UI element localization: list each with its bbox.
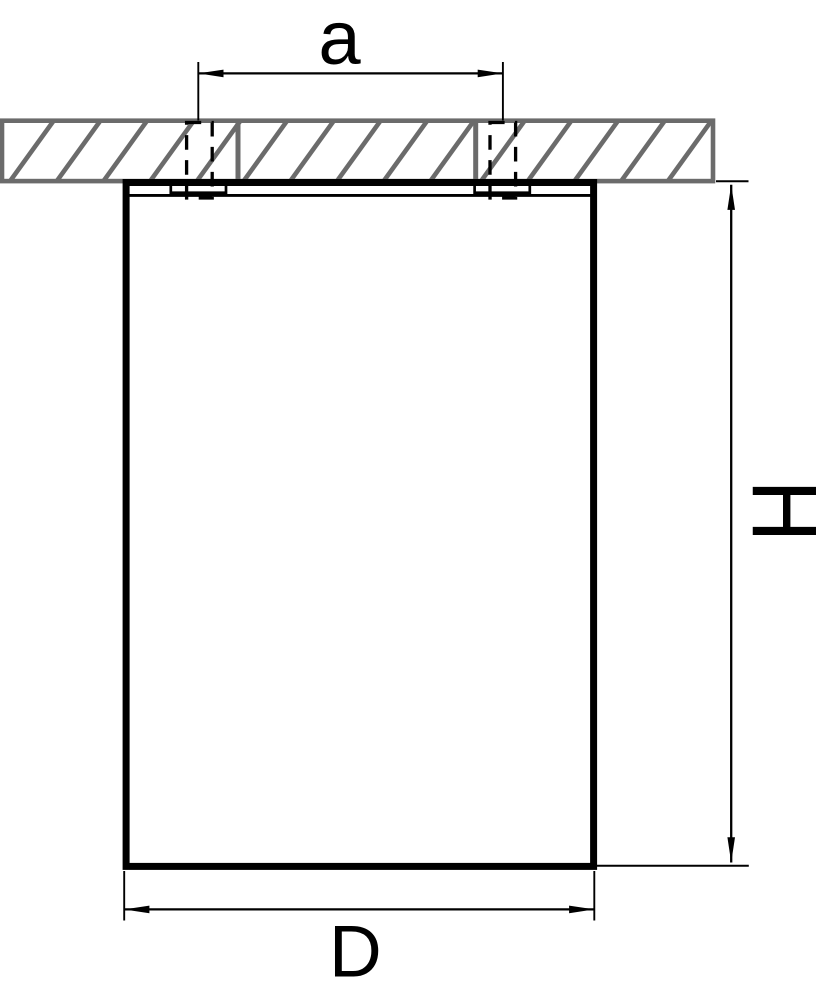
svg-text:H: H [732, 480, 816, 542]
svg-text:a: a [318, 0, 361, 81]
svg-text:D: D [329, 911, 382, 992]
